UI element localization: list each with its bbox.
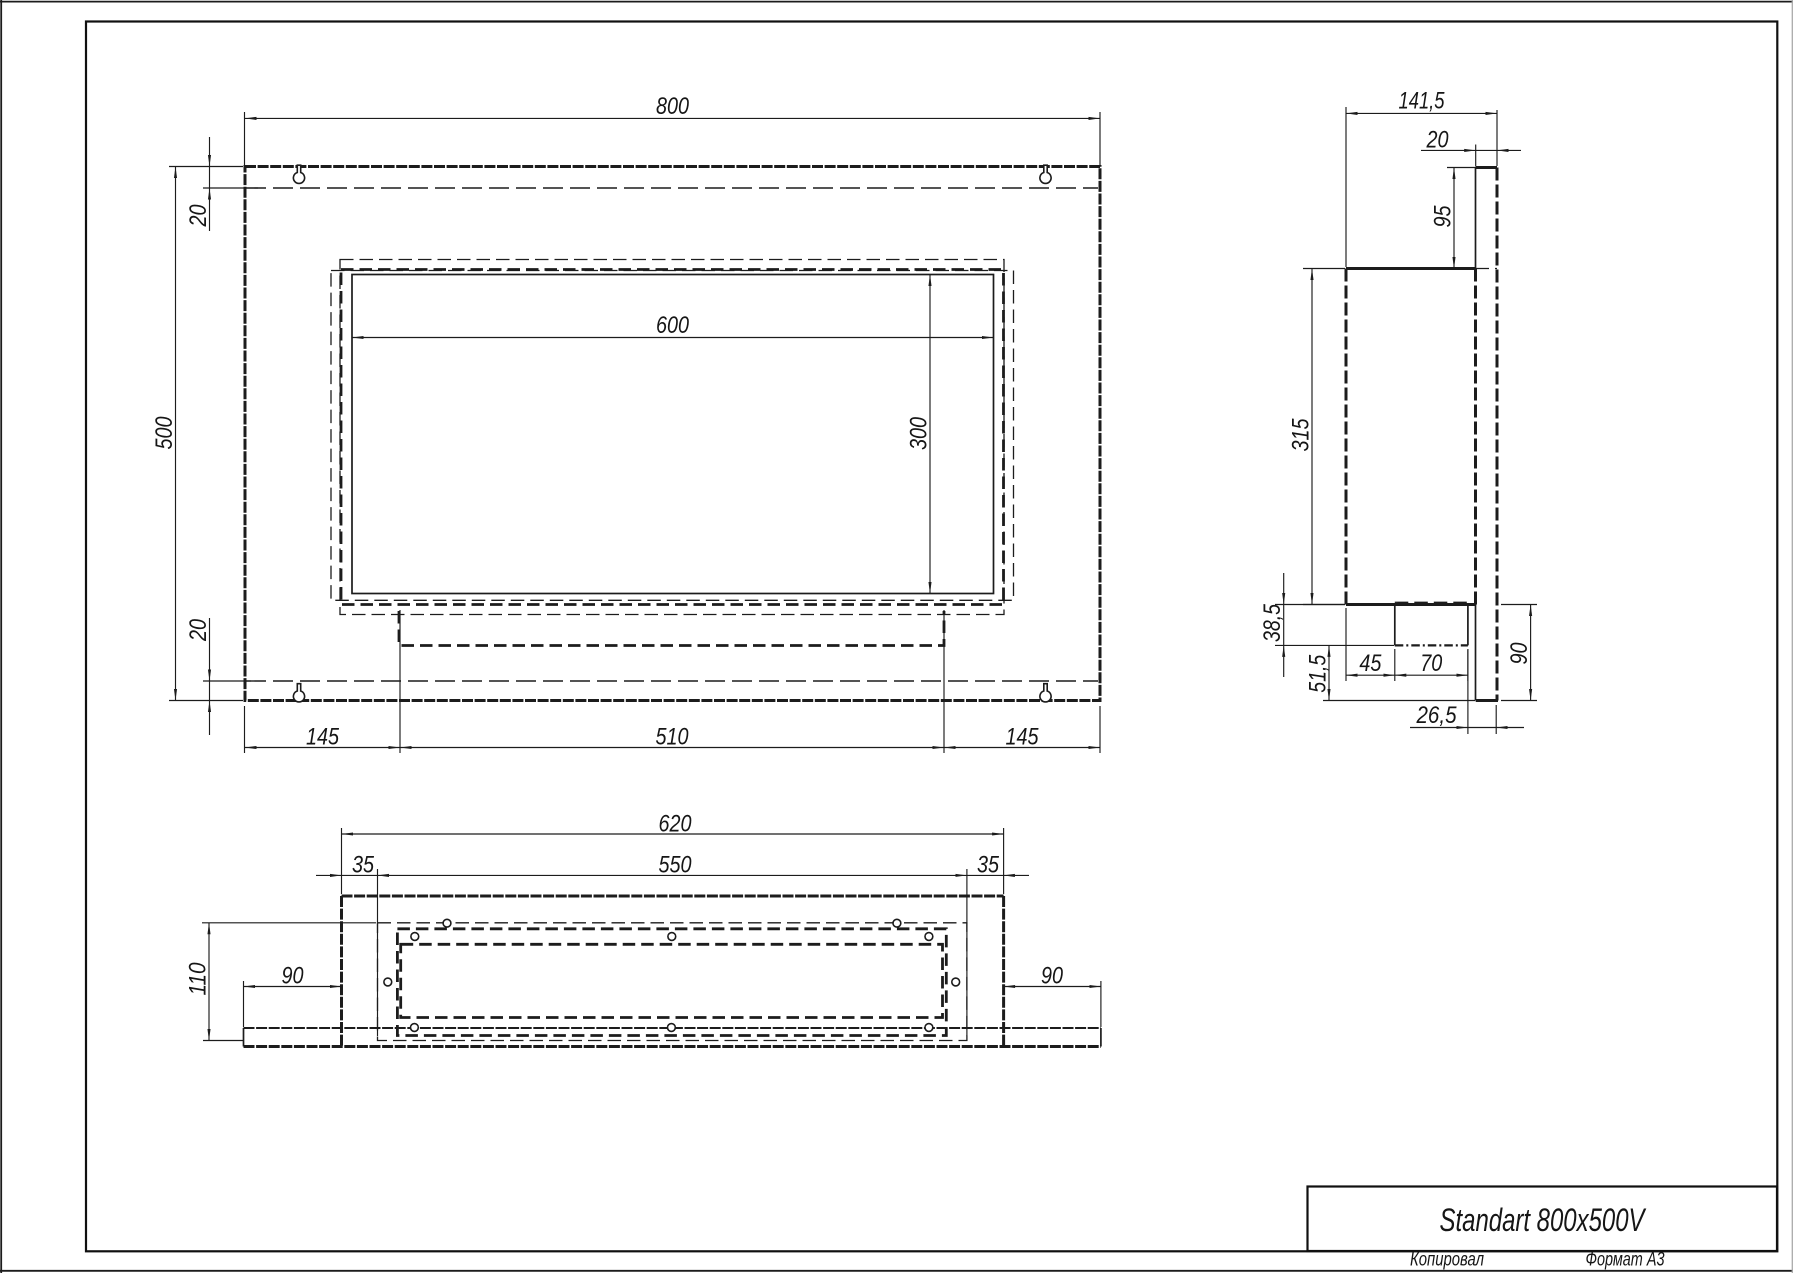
svg-text:51,5: 51,5 [1305, 654, 1332, 693]
svg-text:145: 145 [1006, 724, 1040, 751]
svg-text:45: 45 [1359, 650, 1382, 677]
svg-text:110: 110 [185, 962, 212, 996]
svg-text:300: 300 [906, 416, 933, 450]
svg-text:95: 95 [1430, 205, 1457, 228]
svg-text:38,5: 38,5 [1259, 603, 1286, 642]
svg-text:70: 70 [1420, 650, 1443, 677]
svg-text:35: 35 [352, 852, 375, 879]
svg-text:35: 35 [977, 852, 1000, 879]
svg-text:Копировал: Копировал [1410, 1250, 1484, 1271]
svg-text:Standart 800x500V: Standart 800x500V [1440, 1202, 1647, 1238]
svg-text:620: 620 [659, 811, 693, 838]
svg-text:800: 800 [656, 93, 690, 120]
svg-text:Формат А3: Формат А3 [1586, 1250, 1665, 1271]
svg-text:90: 90 [1506, 642, 1533, 665]
svg-text:20: 20 [185, 618, 212, 641]
svg-text:90: 90 [1041, 963, 1064, 990]
svg-text:26,5: 26,5 [1416, 702, 1457, 729]
svg-text:141,5: 141,5 [1399, 88, 1445, 115]
svg-text:315: 315 [1288, 418, 1315, 452]
svg-text:600: 600 [656, 312, 690, 339]
svg-text:550: 550 [659, 852, 693, 879]
svg-text:20: 20 [185, 204, 212, 227]
svg-text:510: 510 [656, 724, 690, 751]
svg-text:90: 90 [282, 963, 305, 990]
svg-text:20: 20 [1426, 127, 1449, 154]
svg-text:145: 145 [306, 724, 340, 751]
svg-text:500: 500 [151, 416, 178, 450]
